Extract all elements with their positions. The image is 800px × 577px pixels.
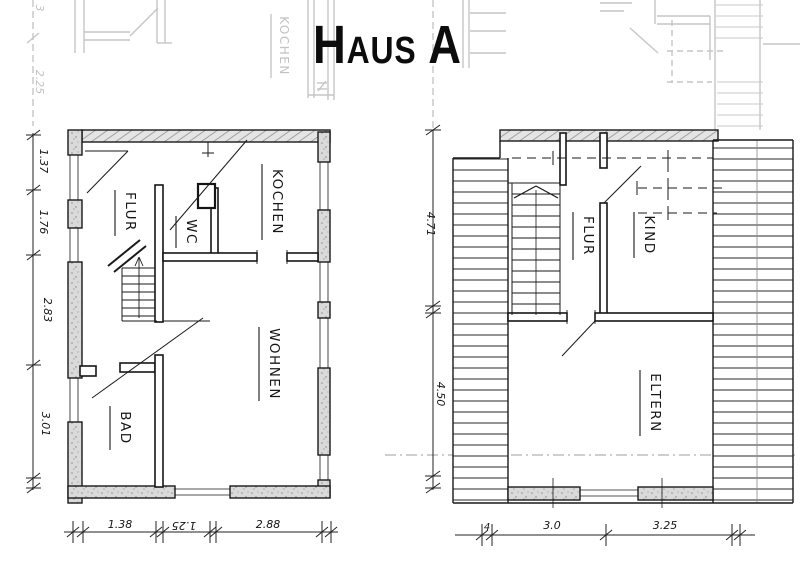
dim-1-38: 1.38: [108, 518, 133, 531]
dim-1-25: 1.25: [172, 519, 197, 532]
faded-dim-partial: 3: [33, 5, 46, 12]
og-dimension-chain-bottom: [455, 524, 755, 546]
room-label-wc: WC: [183, 219, 199, 245]
room-label-bad: BAD: [117, 411, 133, 444]
dim-3-25: 3.25: [653, 519, 678, 532]
dim-1-76: 1.76: [37, 210, 50, 235]
floorplan-drawing: KOCHEN 2.25 3: [0, 0, 800, 577]
dim-4: 4: [484, 522, 490, 533]
room-label-kind: KIND: [641, 215, 657, 254]
faded-kochen-label: KOCHEN: [277, 16, 291, 76]
room-label-flur-eg: FLUR: [122, 192, 138, 232]
roof-band-right: [713, 140, 793, 503]
og-room-labels: FLUR KIND ELTERN: [573, 212, 663, 436]
page-title: Haus A: [313, 14, 481, 76]
room-label-kochen: KOCHEN: [269, 169, 285, 235]
eg-dimension-text-left: 1.37 1.76 2.83 3.01: [37, 149, 54, 437]
drawing-sheet: KOCHEN 2.25 3: [0, 0, 800, 577]
dim-4-50: 4.50: [434, 382, 447, 407]
og-dimension-text-bottom: 4 3.0 3.25: [484, 519, 677, 533]
faded-dim-225: 2.25: [33, 70, 46, 95]
og-stairs: [508, 183, 560, 315]
dim-2-88: 2.88: [256, 518, 281, 531]
eg-dimension-chain-bottom: [64, 521, 338, 543]
dim-3-0: 3.0: [543, 519, 561, 532]
room-label-flur-og: FLUR: [580, 216, 596, 256]
ground-floor-plan: FLUR WC KOCHEN BAD WOHNEN: [26, 130, 338, 543]
og-dimension-text-middle: 4.71 4.50: [424, 212, 447, 407]
og-roof-dashed-lines: [512, 150, 723, 220]
og-dimension-chain-middle: [425, 125, 441, 493]
room-label-eltern: ELTERN: [647, 373, 663, 432]
eg-stairs: [108, 240, 157, 321]
faded-background-text: KOCHEN 2.25 3: [33, 5, 291, 95]
eg-dimension-text-bottom: 1.38 1.25 2.88: [108, 518, 281, 532]
dim-4-71: 4.71: [424, 212, 437, 237]
eg-door-swings: [85, 140, 287, 398]
dim-1-37: 1.37: [37, 149, 50, 174]
room-label-wohnen: WOHNEN: [266, 328, 282, 400]
eg-dimension-chain-left: [26, 130, 41, 493]
dim-2-83: 2.83: [41, 298, 54, 323]
upper-floor-plan: FLUR KIND ELTERN 4.71 4.50: [424, 125, 793, 546]
dim-3-01: 3.01: [39, 412, 52, 437]
roof-band-left: [453, 158, 508, 503]
